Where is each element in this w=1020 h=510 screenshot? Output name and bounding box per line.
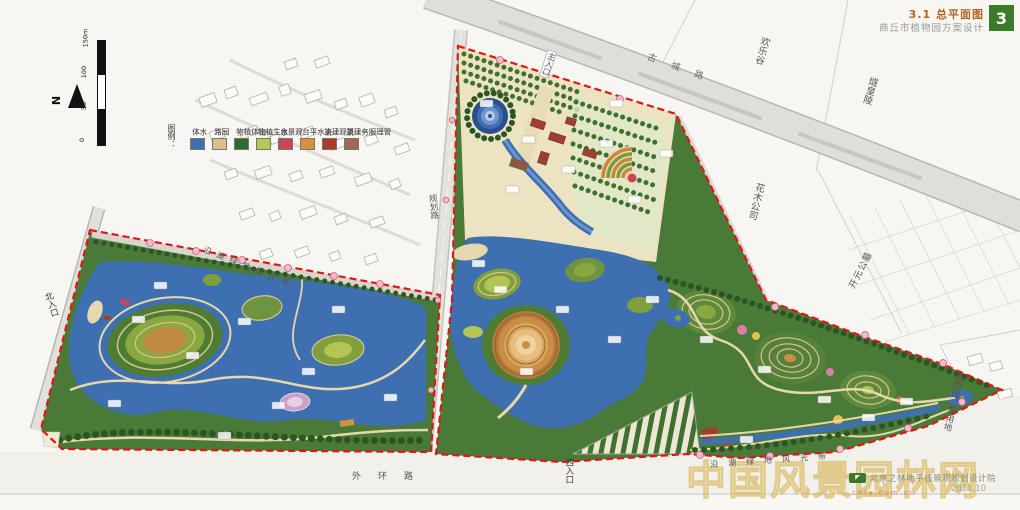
legend-caption: 图例： xyxy=(166,124,177,148)
road-label-guihua: 规划路 xyxy=(427,194,438,220)
design-firm-logo-icon: ◤ xyxy=(849,473,866,483)
design-date: 2011.10 xyxy=(951,484,986,494)
design-firm-name: 北京之林地平线景观规划设计院 xyxy=(870,472,996,484)
watermark-url: chla.com.cn xyxy=(852,489,916,497)
page-subtitle: 商丘市植物园方案设计 xyxy=(879,20,984,34)
scale-tick-50: 50 xyxy=(80,102,88,110)
scale-tick-150: 150m xyxy=(81,29,89,48)
scale-bar xyxy=(97,40,106,146)
legend: N 0 50 100 150m 图例： 水体 园路 山体植物 水生植物 观景台 … xyxy=(40,36,385,150)
scale-tick-0: 0 xyxy=(78,138,86,142)
scale-tick-100: 100 xyxy=(80,66,88,78)
road-label-waihuan: 外环路 xyxy=(352,473,430,482)
plan-sheet: 3.1 总平面图 商丘市植物园方案设计 3 N 0 50 100 150m 图例… xyxy=(0,0,1020,510)
north-label: N xyxy=(50,96,63,105)
page-number-badge: 3 xyxy=(989,5,1014,31)
entrance-label-west: 西入口 xyxy=(564,458,573,484)
